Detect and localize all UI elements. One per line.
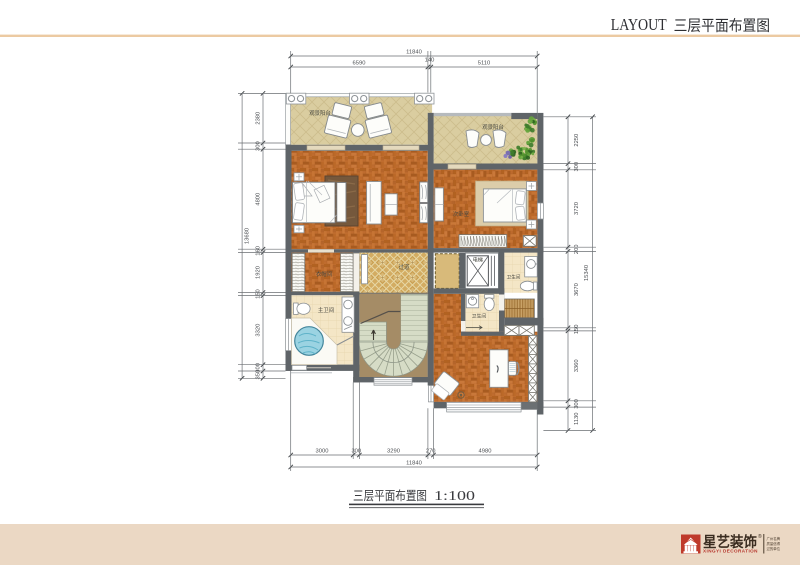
svg-text:3320: 3320 (255, 324, 261, 337)
svg-text:11840: 11840 (406, 50, 422, 56)
svg-text:过的单位: 过的单位 (767, 546, 781, 551)
svg-text:150: 150 (574, 325, 580, 335)
svg-text:衣帽间: 衣帽间 (316, 270, 332, 278)
svg-text:XINGYI DECORATION: XINGYI DECORATION (703, 549, 758, 554)
svg-text:3720: 3720 (574, 202, 580, 215)
svg-text:270: 270 (426, 449, 436, 455)
svg-text:卫生间: 卫生间 (507, 274, 521, 281)
svg-text:2380: 2380 (256, 112, 262, 125)
svg-text:质量信得: 质量信得 (767, 541, 781, 546)
svg-text:3670: 3670 (574, 283, 580, 296)
svg-text:观景阳台: 观景阳台 (482, 123, 504, 131)
svg-text:1:100: 1:100 (434, 488, 475, 503)
svg-text:150: 150 (256, 289, 262, 299)
svg-text:3290: 3290 (387, 449, 400, 455)
svg-text:1920: 1920 (256, 266, 262, 279)
svg-text:三层平面布置图: 三层平面布置图 (353, 489, 427, 503)
svg-text:3360: 3360 (574, 359, 580, 372)
svg-text:1130: 1130 (574, 413, 580, 425)
svg-text:电梯: 电梯 (473, 256, 483, 264)
svg-text:2250: 2250 (574, 134, 580, 147)
svg-text:次卧室: 次卧室 (453, 210, 470, 218)
svg-text:5110: 5110 (478, 61, 490, 67)
svg-text:®: ® (758, 533, 762, 540)
svg-text:11840: 11840 (406, 461, 422, 467)
svg-text:主卫间: 主卫间 (318, 306, 334, 314)
svg-text:160: 160 (255, 246, 261, 256)
svg-text:卫生间: 卫生间 (472, 313, 487, 320)
svg-text:4800: 4800 (256, 193, 262, 206)
svg-text:140: 140 (425, 58, 435, 64)
svg-text:15340: 15340 (584, 265, 590, 281)
svg-text:6590: 6590 (353, 61, 366, 67)
svg-text:LAYOUT: LAYOUT (611, 15, 667, 34)
svg-text:观景阳台: 观景阳台 (309, 109, 331, 117)
svg-text:4980: 4980 (479, 449, 492, 455)
svg-text:200: 200 (574, 244, 580, 254)
svg-text:广州名牌: 广州名牌 (767, 536, 781, 541)
svg-text:过道: 过道 (399, 263, 410, 271)
svg-text:三层平面布置图: 三层平面布置图 (674, 18, 771, 35)
svg-text:3000: 3000 (316, 449, 329, 455)
svg-text:13680: 13680 (245, 228, 251, 244)
